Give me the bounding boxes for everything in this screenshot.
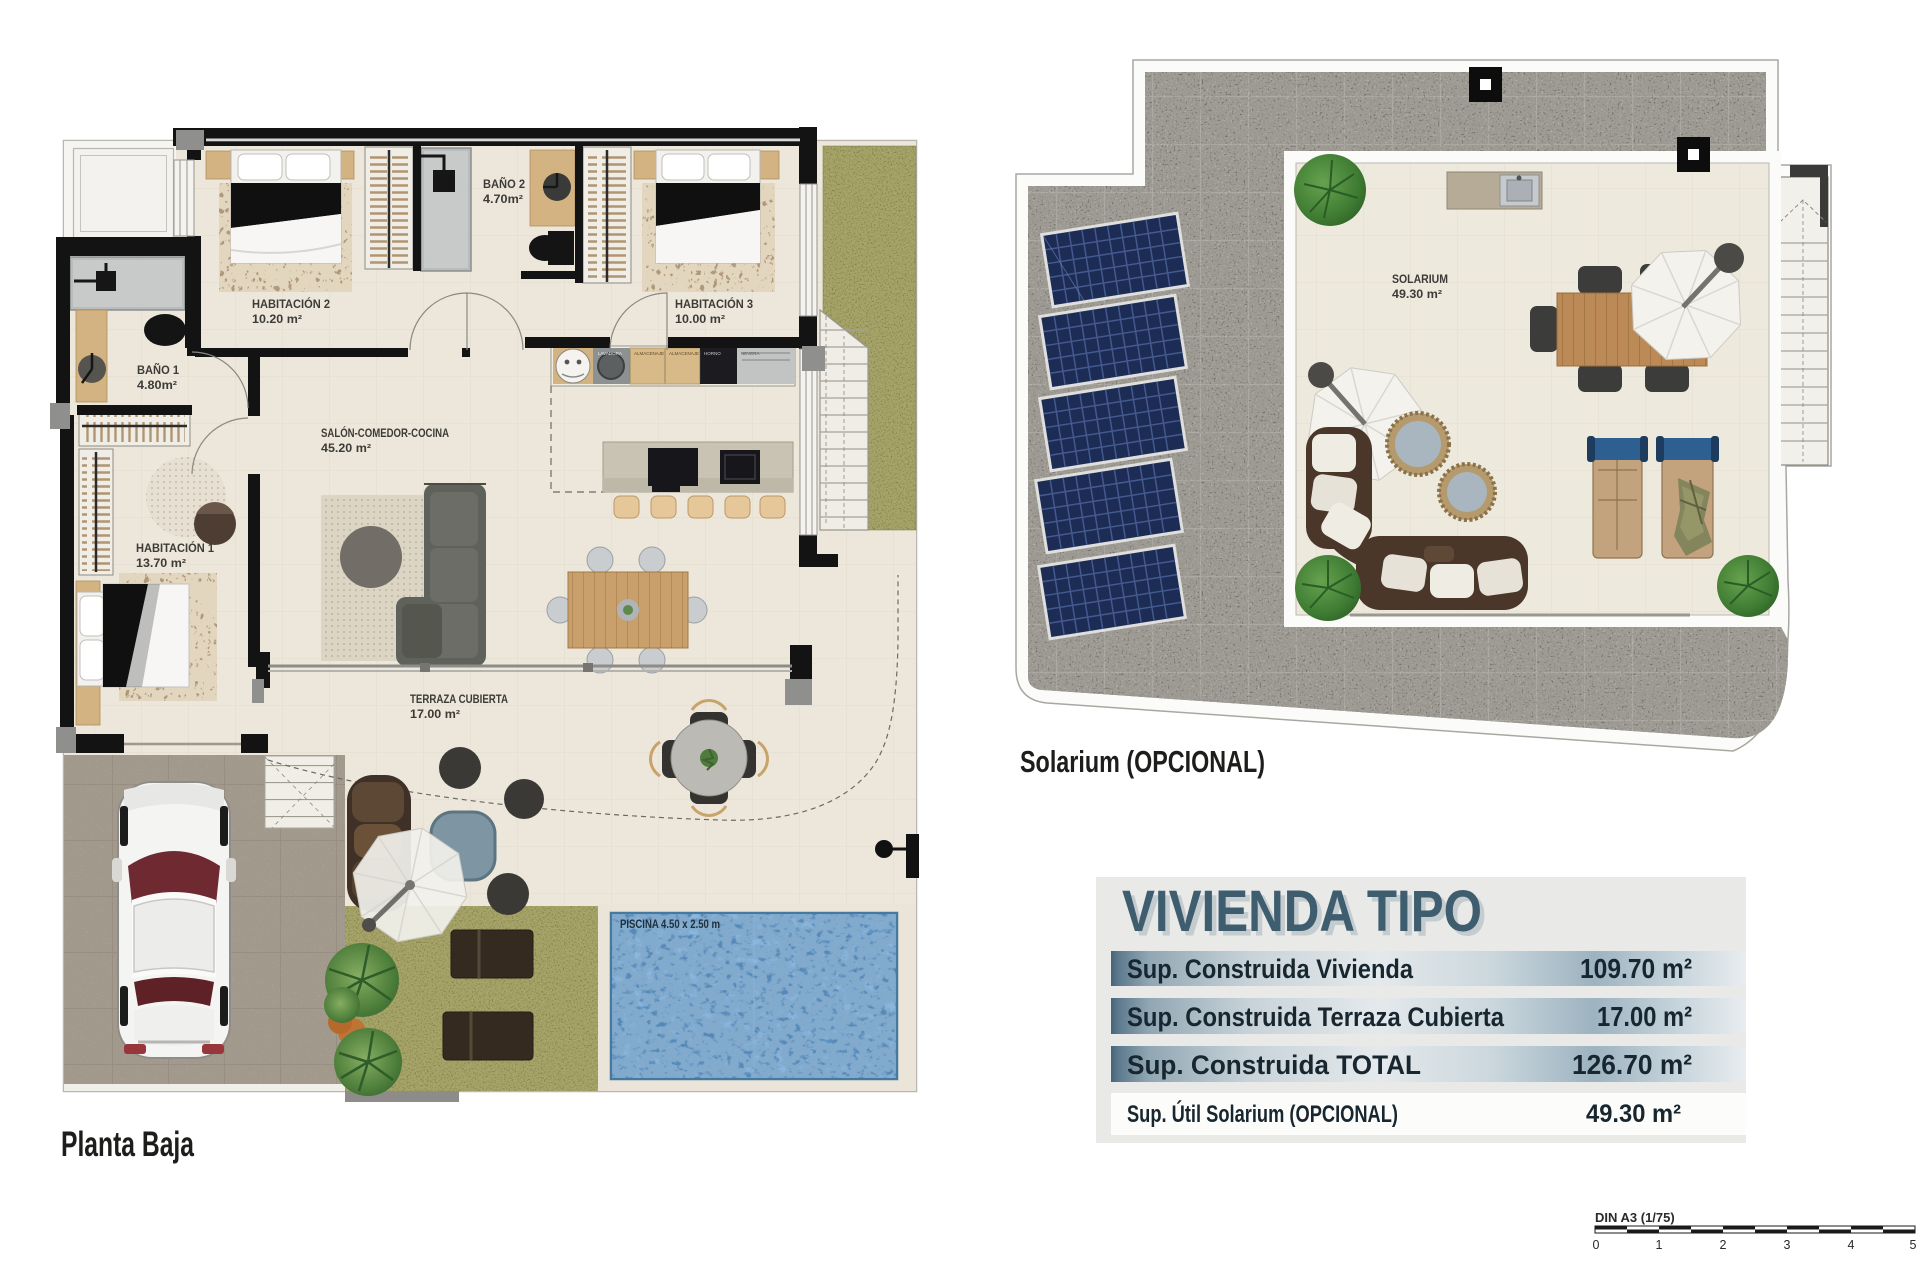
svg-text:5: 5 (1910, 1238, 1917, 1252)
svg-text:Sup. Construida Terraza Cubier: Sup. Construida Terraza Cubierta (1127, 1002, 1505, 1032)
svg-text:NEVERA: NEVERA (741, 351, 760, 356)
svg-text:VIVIENDA TIPO: VIVIENDA TIPO (1122, 879, 1482, 944)
svg-text:3: 3 (1784, 1238, 1791, 1252)
svg-text:Sup. Útil Solarium (OPCIONAL): Sup. Útil Solarium (OPCIONAL) (1127, 1100, 1398, 1128)
svg-text:49.30 m²: 49.30 m² (1392, 289, 1442, 301)
svg-text:TERRAZA CUBIERTA: TERRAZA CUBIERTA (410, 694, 508, 706)
svg-text:HABITACIÓN 3: HABITACIÓN 3 (675, 298, 753, 311)
svg-text:2: 2 (1720, 1238, 1727, 1252)
svg-text:PISCINA 4.50 x 2.50 m: PISCINA 4.50 x 2.50 m (620, 917, 720, 931)
svg-text:SOLARIUM: SOLARIUM (1392, 274, 1448, 286)
svg-text:BAÑO 1: BAÑO 1 (137, 364, 180, 377)
svg-text:45.20 m²: 45.20 m² (321, 443, 371, 455)
svg-text:DIN A3 (1/75): DIN A3 (1/75) (1595, 1210, 1675, 1225)
svg-text:4.70m²: 4.70m² (483, 194, 523, 206)
svg-text:HABITACIÓN 1: HABITACIÓN 1 (136, 542, 215, 555)
svg-text:17.00 m²: 17.00 m² (1597, 1001, 1692, 1032)
svg-text:0: 0 (1593, 1238, 1600, 1252)
svg-text:HORNO: HORNO (704, 351, 721, 356)
svg-text:HABITACIÓN 2: HABITACIÓN 2 (252, 298, 330, 311)
svg-text:1: 1 (1656, 1238, 1663, 1252)
svg-text:10.20 m²: 10.20 m² (252, 314, 302, 326)
svg-text:Sup. Construida TOTAL: Sup. Construida TOTAL (1127, 1050, 1421, 1080)
svg-text:4: 4 (1848, 1238, 1855, 1252)
svg-text:ALMACENAJE: ALMACENAJE (634, 351, 664, 356)
svg-text:109.70 m²: 109.70 m² (1580, 953, 1692, 984)
svg-text:10.00 m²: 10.00 m² (675, 314, 725, 326)
svg-text:Sup. Construida Vivienda: Sup. Construida Vivienda (1127, 954, 1414, 984)
svg-text:ALMACENAJE: ALMACENAJE (669, 351, 699, 356)
svg-text:17.00 m²: 17.00 m² (410, 709, 460, 721)
svg-text:Planta Baja: Planta Baja (61, 1125, 194, 1164)
svg-text:13.70 m²: 13.70 m² (136, 558, 186, 570)
svg-text:BAÑO 2: BAÑO 2 (483, 178, 525, 191)
svg-text:4.80m²: 4.80m² (137, 380, 177, 392)
svg-text:SALÓN-COMEDOR-COCINA: SALÓN-COMEDOR-COCINA (321, 427, 449, 440)
svg-text:LAVADORA: LAVADORA (598, 351, 622, 356)
svg-text:49.30 m²: 49.30 m² (1586, 1100, 1681, 1128)
svg-text:Solarium (OPCIONAL): Solarium (OPCIONAL) (1020, 744, 1265, 779)
svg-text:126.70 m²: 126.70 m² (1572, 1049, 1692, 1080)
